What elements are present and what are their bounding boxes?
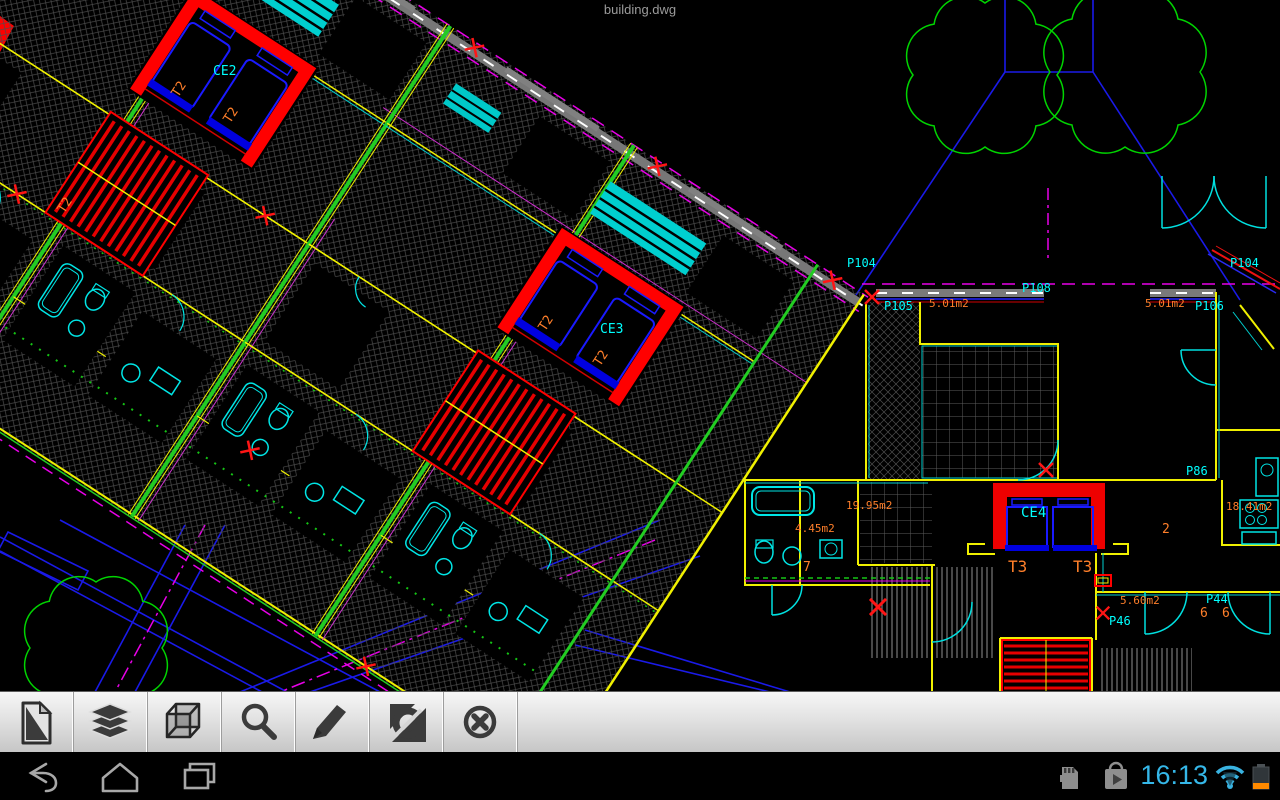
recents-button[interactable]	[172, 752, 228, 800]
cad-label: CE2	[213, 64, 236, 79]
cad-label: T3	[1008, 557, 1027, 576]
wifi-icon	[1214, 761, 1246, 791]
views-button[interactable]	[370, 692, 444, 752]
cad-canvas[interactable]: CE2CE3CE4T2T2T2T2T2T3T3P104P104P108P105P…	[0, 0, 1280, 692]
cad-label: 19.95m2	[846, 499, 892, 512]
status-cluster: 16:13	[1058, 752, 1272, 800]
clock: 16:13	[1140, 760, 1208, 791]
toolbar	[0, 691, 1280, 752]
android-navbar: 16:13	[0, 752, 1280, 800]
cad-label: P105	[884, 299, 913, 313]
close-button[interactable]	[444, 692, 518, 752]
cad-label: 6	[1200, 606, 1208, 621]
home-icon	[103, 764, 137, 791]
back-icon	[31, 764, 56, 791]
play-store-icon	[1100, 760, 1132, 792]
layers-button[interactable]	[74, 692, 148, 752]
file-icon	[0, 692, 73, 753]
cad-label: 5.01m2	[1145, 297, 1185, 310]
cad-label: 2	[1162, 522, 1170, 537]
pencil-icon	[296, 692, 369, 753]
cad-label: P108	[1022, 281, 1051, 295]
cad-label: P104	[1230, 256, 1259, 270]
cad-label: T3	[1073, 557, 1092, 576]
cad-label: P104	[847, 256, 876, 270]
cad-label: CE3	[600, 322, 623, 337]
file-button[interactable]	[0, 692, 74, 752]
battery-icon	[1250, 761, 1272, 791]
recents-icon	[185, 764, 214, 788]
cad-label: P46	[1109, 614, 1131, 628]
close-icon	[444, 692, 517, 753]
cad-label: 5.60m2	[1120, 594, 1160, 607]
back-button[interactable]	[14, 752, 70, 800]
orbit-icon	[370, 692, 443, 753]
cad-label: P86	[1186, 464, 1208, 478]
cad-label: 5.01m2	[929, 297, 969, 310]
app-screen: CE2CE3CE4T2T2T2T2T2T3T3P104P104P108P105P…	[0, 0, 1280, 800]
cad-label: 6	[1222, 606, 1230, 621]
right-stairs	[1002, 640, 1090, 692]
view-3d-button[interactable]	[148, 692, 222, 752]
layers-icon	[74, 692, 147, 753]
zoom-button[interactable]	[222, 692, 296, 752]
cad-label: CE4	[1021, 505, 1046, 521]
cad-label: 4.45m2	[795, 522, 835, 535]
magnifier-icon	[222, 692, 295, 753]
cad-label: P106	[1195, 299, 1224, 313]
cad-label: P44	[1206, 592, 1228, 606]
cad-label: 18.41m2	[1226, 500, 1272, 513]
sd-card-icon	[1058, 761, 1082, 791]
cube-icon	[148, 692, 221, 753]
edit-button[interactable]	[296, 692, 370, 752]
home-button[interactable]	[92, 752, 148, 800]
cad-label: 7	[803, 560, 811, 575]
